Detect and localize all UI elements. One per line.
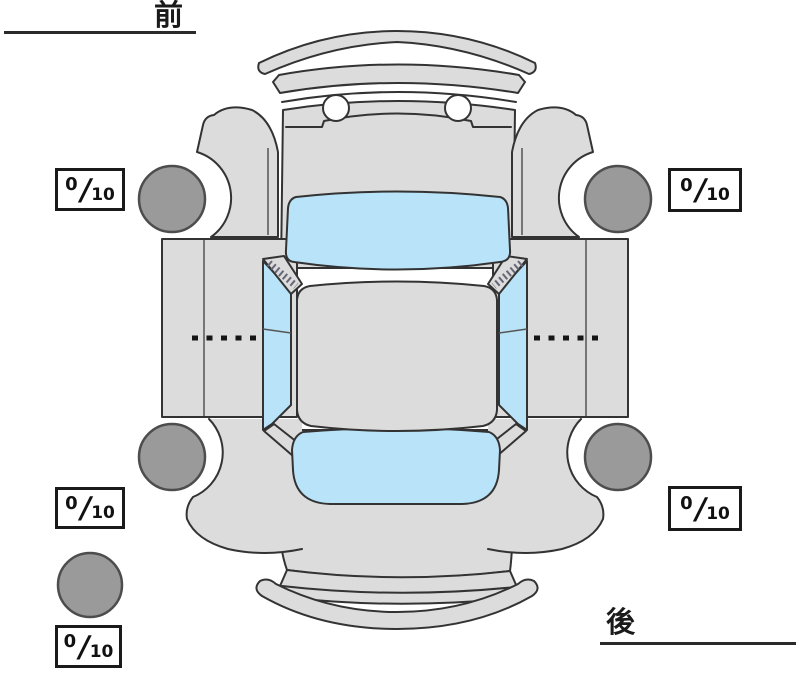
tire-score-separator: / — [696, 173, 707, 207]
front-fender-left — [197, 107, 278, 237]
tire-score-value: 0 — [680, 175, 693, 196]
tire-score-max: 10 — [90, 642, 114, 662]
strut-tower-right-icon — [445, 95, 471, 121]
strut-tower-left-icon — [323, 95, 349, 121]
rear-window — [292, 428, 500, 504]
tire-score-max: 10 — [706, 185, 730, 205]
rear-direction-rule — [600, 642, 796, 645]
tire-score-rear-right: 0/10 — [668, 486, 742, 531]
car-top-view — [0, 0, 800, 675]
tire-score-separator: / — [79, 630, 90, 664]
tire-score-front-right: 0/10 — [668, 168, 742, 212]
tire-score-separator: / — [696, 492, 707, 526]
front-direction-label: 前 — [154, 1, 183, 30]
cowl-panel — [273, 65, 525, 94]
tire-score-max: 10 — [706, 504, 730, 524]
roof-panel — [297, 282, 497, 432]
tire-score-spare: 0/10 — [55, 625, 122, 668]
tire-score-max: 10 — [91, 185, 115, 205]
wheel-rear-right — [585, 424, 651, 490]
wheel-spare — [58, 553, 122, 617]
tire-score-value: 0 — [65, 174, 78, 195]
tire-score-rear-left: 0/10 — [55, 487, 125, 529]
tire-score-max: 10 — [91, 503, 115, 523]
tire-score-front-left: 0/10 — [55, 168, 125, 211]
tire-score-value: 0 — [680, 493, 693, 514]
wheel-front-right — [585, 166, 651, 232]
tire-score-separator: / — [81, 491, 92, 525]
rear-direction-label: 後 — [606, 608, 635, 637]
wheel-rear-left — [139, 424, 205, 490]
windshield — [286, 192, 510, 270]
tire-score-separator: / — [81, 173, 92, 207]
front-fender-right — [512, 107, 593, 237]
tire-condition-diagram: 前 後 0/10 0/10 0/10 0/10 0/10 — [0, 0, 800, 675]
front-direction-rule — [4, 31, 196, 34]
wheel-front-left — [139, 166, 205, 232]
tire-score-value: 0 — [65, 493, 78, 514]
tire-score-value: 0 — [64, 631, 77, 652]
